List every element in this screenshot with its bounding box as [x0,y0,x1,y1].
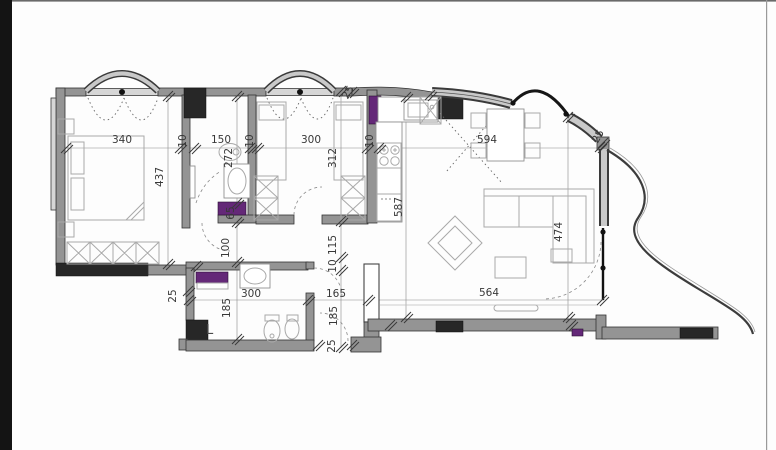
dimension-label: 10 [177,134,189,147]
column-living [436,321,463,332]
column-bottom-right [680,328,713,338]
wall-entry-step [351,337,381,352]
dimension-label: 25 [167,289,179,302]
window2-marker [297,89,303,95]
dimension-label: 594 [477,134,497,146]
wall-bottom-gray [148,265,188,275]
wall-bath2-left [186,268,194,320]
door-pivot-dot-2 [563,111,568,116]
floor-plan-canvas: L 34010150103001059443727265100312115105… [0,0,776,450]
door-leaf-bath1 [190,166,195,198]
dimension-label: 272 [223,148,235,168]
dimension-label: 10 [364,134,376,147]
dimension-label: 300 [301,134,321,146]
left-edge-bar [0,0,12,450]
column-top-1 [184,88,206,118]
window-left [51,98,56,210]
dimension-label: 185 [328,306,340,326]
door-dot-1 [600,229,605,234]
door-dot-2 [600,265,605,270]
dimension-label: 185 [221,298,233,318]
wall-entry-hollow [364,264,379,322]
dimension-label: 474 [553,222,565,242]
right-border-line [766,0,767,450]
dimension-label: 115 [327,235,339,255]
top-border-line [12,0,776,2]
shaft-living [572,329,583,336]
shaft-laundry [196,272,228,283]
dimension-label: 25 [326,339,338,352]
dimension-label: 564 [479,287,499,299]
dimension-label: 10 [327,259,339,272]
wall-bottom-dark [56,263,148,276]
page-frame [0,0,776,450]
wall-bath2-bottom [186,340,314,351]
page-background [0,0,776,450]
wall-bath2-right-stub [306,262,314,269]
dimension-label: 100 [220,238,232,258]
dimension-label: 65 [225,206,237,219]
dimension-label: 340 [112,134,132,146]
dimension-label: 150 [211,134,231,146]
room-label-laundry: L [206,323,214,338]
dimension-label: 300 [241,288,261,300]
wall-left [56,88,65,265]
dimension-label: 312 [327,148,339,168]
window1-marker [119,89,125,95]
dimension-label: 10 [244,134,256,147]
wall-bath1-right [248,95,256,222]
door-pivot-dot-1 [510,100,515,105]
dimension-label: 437 [154,167,166,187]
dimension-label: 165 [326,288,346,300]
dimension-label: 587 [393,197,405,217]
